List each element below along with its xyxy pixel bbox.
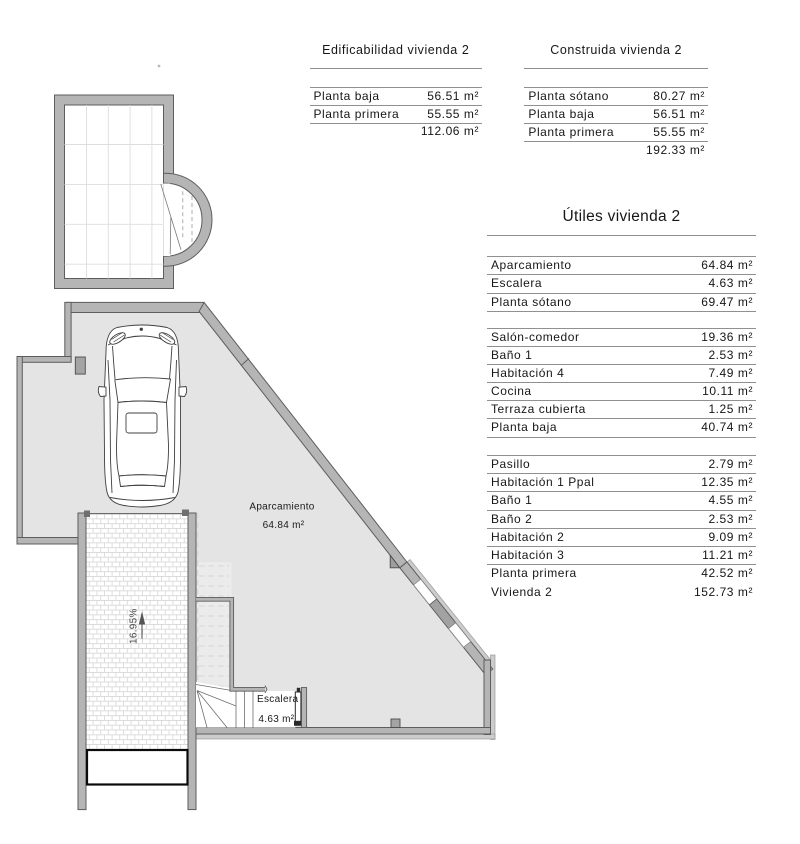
svg-text:Aparcamiento: Aparcamiento xyxy=(249,502,314,513)
svg-text:64.84 m²: 64.84 m² xyxy=(263,520,305,531)
svg-text:16.95%: 16.95% xyxy=(129,608,140,644)
svg-text:Escalera: Escalera xyxy=(257,694,298,705)
svg-text:4.63 m²: 4.63 m² xyxy=(258,714,294,725)
